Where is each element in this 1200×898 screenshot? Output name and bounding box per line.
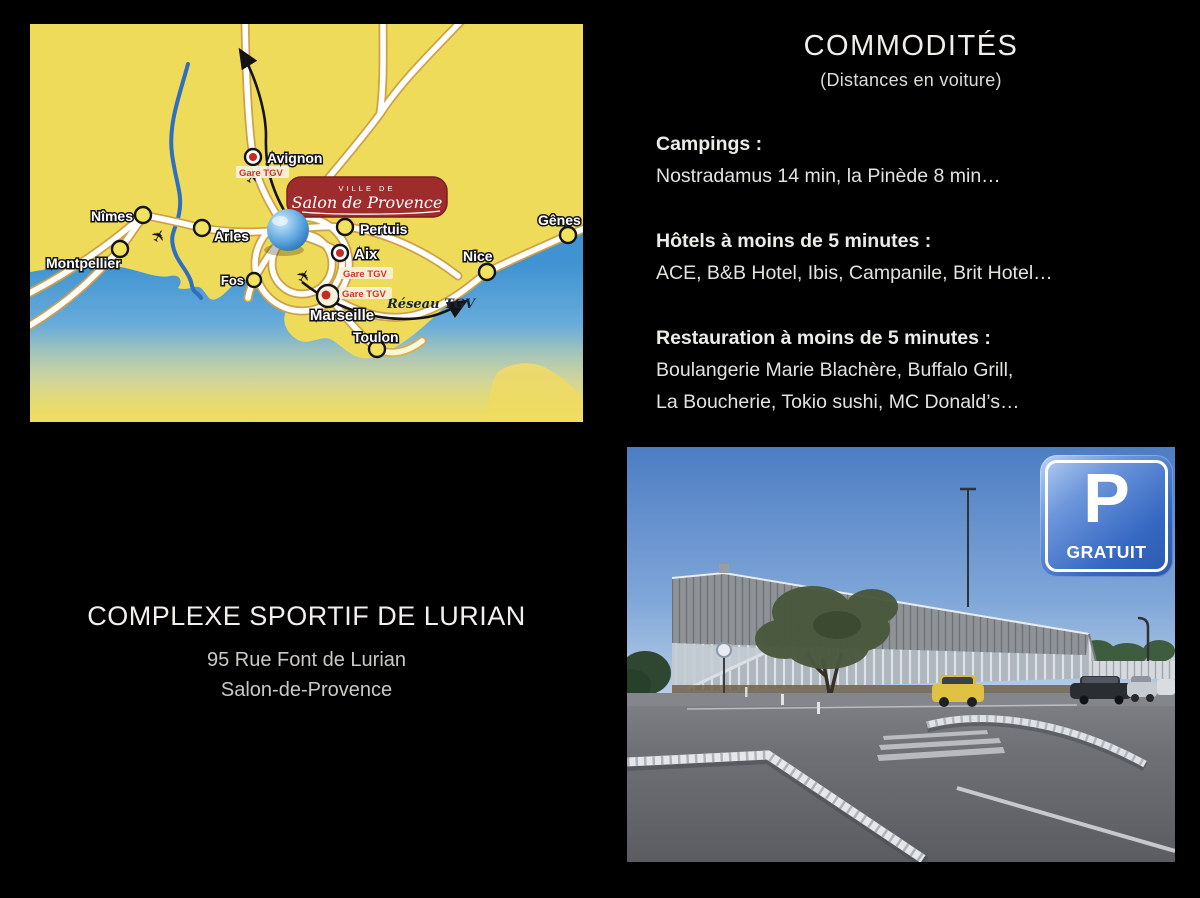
label-nimes: Nîmes: [91, 208, 133, 224]
section-line: ACE, B&B Hotel, Ibis, Campanile, Brit Ho…: [656, 257, 1190, 289]
venue-name: COMPLEXE SPORTIF DE LURIAN: [30, 601, 583, 632]
region-map: ✈ ✈ ✈ Réseau TGV: [30, 24, 583, 422]
section-heading: Campings :: [656, 128, 1190, 160]
city-dot-nice: [479, 264, 495, 280]
parking-sign-letter: P: [1083, 463, 1130, 534]
section-heading: Hôtels à moins de 5 minutes :: [656, 225, 1190, 257]
venue-address: 95 Rue Font de Lurian Salon-de-Provence: [30, 645, 583, 705]
label-avignon: Avignon: [267, 150, 322, 166]
gare-tgv-avignon: Gare TGV: [239, 168, 283, 179]
city-dot-nimes: [135, 207, 151, 223]
dirt-strip: [672, 685, 1092, 693]
commodites-sections: Campings : Nostradamus 14 min, la Pinède…: [632, 128, 1190, 418]
section-hotels: Hôtels à moins de 5 minutes : ACE, B&B H…: [656, 225, 1190, 289]
city-dot-fos: [247, 273, 261, 287]
label-montpellier: Montpellier: [46, 255, 121, 271]
label-genes: Gênes: [538, 212, 581, 228]
label-marseille: Marseille: [310, 307, 374, 324]
white-car-partial: [1157, 679, 1175, 695]
commodites-title: COMMODITÉS: [632, 30, 1190, 63]
venue-address-line2: Salon-de-Provence: [30, 675, 583, 705]
region-map-panel: ✈ ✈ ✈ Réseau TGV: [30, 24, 583, 422]
gare-tgv-marseille: Gare TGV: [342, 289, 386, 300]
parking-sign-caption: GRATUIT: [1067, 542, 1147, 563]
parking-sign-border: P GRATUIT: [1045, 460, 1168, 572]
city-dot-pertuis: [337, 219, 353, 235]
venue-photo-panel: P GRATUIT: [627, 447, 1175, 862]
banner-salon-script: Salon de Provence: [292, 193, 443, 212]
banner-ville-de: VILLE DE: [339, 184, 396, 193]
section-line: Boulangerie Marie Blachère, Buffalo Gril…: [656, 354, 1190, 386]
section-heading: Restauration à moins de 5 minutes :: [656, 322, 1190, 354]
salon-banner: VILLE DE Salon de Provence: [287, 177, 447, 217]
slide: { "commodites": { "title": "COMMODITÉS",…: [0, 0, 1200, 898]
label-aix: Aix: [354, 246, 378, 263]
venue-address-line1: 95 Rue Font de Lurian: [30, 645, 583, 675]
label-fos: Fos: [221, 273, 244, 288]
commodites-block: COMMODITÉS (Distances en voiture) Campin…: [632, 30, 1190, 451]
label-arles: Arles: [214, 228, 249, 244]
gare-tgv-aix: Gare TGV: [343, 269, 387, 280]
label-toulon: Toulon: [353, 329, 399, 345]
section-line: Nostradamus 14 min, la Pinède 8 min…: [656, 160, 1190, 192]
reseau-tgv-label: Réseau TGV: [386, 297, 477, 312]
venue-block: COMPLEXE SPORTIF DE LURIAN 95 Rue Font d…: [30, 601, 583, 705]
section-campings: Campings : Nostradamus 14 min, la Pinède…: [656, 128, 1190, 192]
city-dot-genes: [560, 227, 576, 243]
commodites-subtitle: (Distances en voiture): [632, 70, 1190, 91]
city-dot-arles: [194, 220, 210, 236]
parking-asphalt: [627, 693, 1175, 862]
label-nice: Nice: [463, 248, 493, 264]
section-restauration: Restauration à moins de 5 minutes : Boul…: [656, 322, 1190, 418]
label-pertuis: Pertuis: [360, 221, 408, 237]
map-fade: [30, 324, 583, 422]
parking-sign: P GRATUIT: [1040, 455, 1173, 577]
section-line: La Boucherie, Tokio sushi, MC Donald’s…: [656, 386, 1190, 418]
